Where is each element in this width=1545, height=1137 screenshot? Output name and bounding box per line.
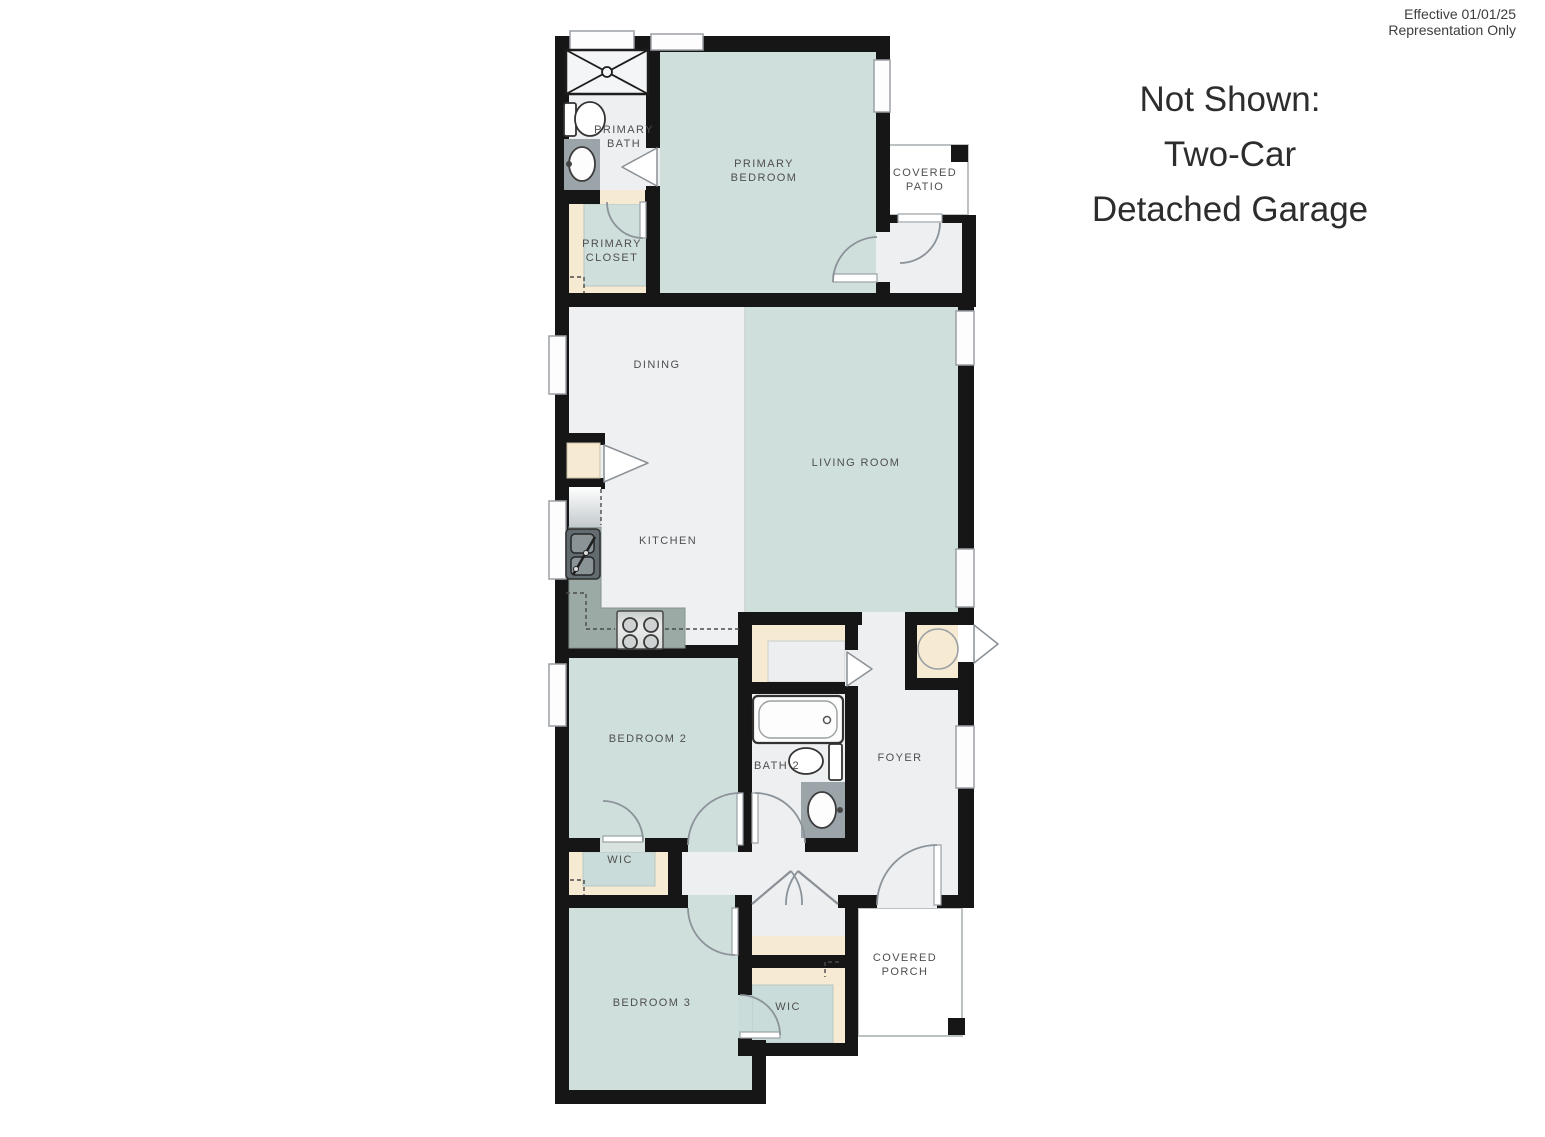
water-heater xyxy=(918,629,958,669)
water-heater-opening xyxy=(958,625,974,662)
laundry-shelf xyxy=(752,936,845,956)
floor-plan: PRIMARY BATH PRIMARY CLOSET PRIMARY BEDR… xyxy=(0,0,1545,1137)
water-heater-door xyxy=(974,625,998,663)
window-kitchen xyxy=(549,501,566,579)
faucet-bath2 xyxy=(837,807,843,813)
bedroom-hall-opening xyxy=(876,232,890,282)
label-primary-bedroom-2: BEDROOM xyxy=(731,172,798,184)
label-wic3: WIC xyxy=(775,1001,801,1013)
patio-hall-floor xyxy=(890,223,962,297)
label-kitchen: KITCHEN xyxy=(639,535,697,547)
label-wic2: WIC xyxy=(607,854,633,866)
label-foyer: FOYER xyxy=(878,752,923,764)
bedroom3-door-leaf xyxy=(732,908,738,955)
hall-foyer-opening xyxy=(845,852,858,895)
label-bedroom2: BEDROOM 2 xyxy=(609,733,688,745)
faucet-knob-2 xyxy=(584,551,589,556)
front-door-opening xyxy=(877,895,937,908)
bath2-opening xyxy=(752,838,805,852)
faucet-primary xyxy=(566,161,572,167)
faucet-knob xyxy=(574,567,579,572)
primary-closet-opening xyxy=(600,190,645,204)
window-primary-bedroom-top xyxy=(651,34,703,50)
label-primary-closet-1: PRIMARY xyxy=(582,238,642,250)
wic2-door-leaf xyxy=(603,836,643,842)
bedroom3-opening xyxy=(688,895,735,908)
primary-closet-door-leaf xyxy=(640,202,646,238)
label-dining: DINING xyxy=(634,359,681,371)
label-primary-bath-2: BATH xyxy=(607,138,641,150)
laundry-closet-floor xyxy=(752,908,845,938)
label-primary-bath-1: PRIMARY xyxy=(594,124,654,136)
bedroom2-floor xyxy=(569,658,738,838)
window-living-bottom xyxy=(956,549,974,607)
label-living-room: LIVING ROOM xyxy=(812,457,901,469)
sink-bath2 xyxy=(808,792,836,828)
window-living-top xyxy=(956,311,974,365)
burner xyxy=(644,618,658,632)
window-dining xyxy=(549,336,566,394)
laundry-opening xyxy=(752,895,838,908)
bathtub xyxy=(753,696,843,743)
toilet-tank-bath2 xyxy=(829,744,842,780)
primary-bedroom-door-leaf xyxy=(833,274,877,282)
label-primary-closet-2: CLOSET xyxy=(586,252,638,264)
burner xyxy=(623,635,637,649)
front-door-leaf xyxy=(934,845,941,905)
bedroom2-door-leaf xyxy=(737,793,743,845)
label-covered-patio-1: COVERED xyxy=(893,167,957,179)
coat-closet-floor xyxy=(768,641,845,682)
wic3-door-leaf xyxy=(740,1032,780,1038)
label-bedroom3: BEDROOM 3 xyxy=(613,997,692,1009)
bedroom2-opening xyxy=(688,838,738,852)
burner xyxy=(623,618,637,632)
water-heater-closet xyxy=(917,625,958,678)
window-shower xyxy=(570,31,634,50)
label-primary-bedroom-1: PRIMARY xyxy=(734,158,794,170)
label-covered-porch-1: COVERED xyxy=(873,952,937,964)
refrigerator-space xyxy=(569,487,601,527)
living-foyer-opening xyxy=(862,612,905,625)
burner xyxy=(644,635,658,649)
window-foyer xyxy=(956,726,974,788)
label-covered-patio-2: PATIO xyxy=(906,181,944,193)
bath2-door-leaf xyxy=(752,793,758,843)
label-covered-porch-2: PORCH xyxy=(882,966,929,978)
patio-door-leaf xyxy=(898,214,942,222)
sink-primary xyxy=(569,147,595,181)
window-primary-bedroom-right xyxy=(874,60,890,112)
pantry-cabinet xyxy=(567,443,600,478)
window-bedroom2 xyxy=(549,664,566,726)
label-bath2: BATH 2 xyxy=(754,760,800,772)
porch-post xyxy=(948,1018,965,1035)
shower-drain xyxy=(602,67,612,77)
